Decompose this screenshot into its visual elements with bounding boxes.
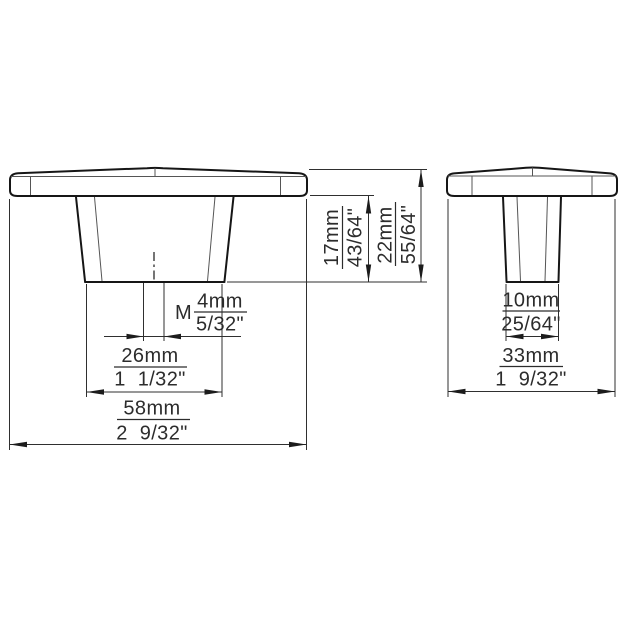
arrowhead-down bbox=[366, 265, 371, 283]
side-neck-right-outer-line bbox=[559, 197, 562, 281]
front-neck-left-outer-line bbox=[76, 197, 85, 281]
front-view bbox=[10, 168, 307, 282]
front-neck-right-outer-line bbox=[225, 197, 234, 281]
dim-overall-width: 58mm 2 9/32" bbox=[10, 199, 307, 450]
arrowhead-right bbox=[289, 442, 307, 447]
front-dimensions: 58mm 2 9/32" 26mm 1 1/32" M 4mm 5/32" bbox=[10, 170, 428, 451]
drawing-canvas: 58mm 2 9/32" 26mm 1 1/32" M 4mm 5/32" bbox=[0, 0, 620, 620]
dim-thread: M 4mm 5/32" bbox=[104, 283, 247, 341]
arrowhead-left bbox=[127, 334, 144, 339]
front-neck-right-inner-line bbox=[208, 197, 216, 281]
label-overall-width-inch: 2 9/32" bbox=[116, 423, 187, 445]
label-overall-depth-inch: 1 9/32" bbox=[495, 369, 566, 391]
arrowhead-up bbox=[366, 196, 371, 214]
technical-drawing: 58mm 2 9/32" 26mm 1 1/32" M 4mm 5/32" bbox=[0, 0, 620, 620]
side-neck-left-inner-line bbox=[517, 197, 521, 281]
side-view bbox=[447, 168, 617, 283]
arrowhead-right bbox=[164, 334, 181, 339]
label-neck-width-mm: 26mm bbox=[121, 345, 178, 367]
arrowhead-left bbox=[87, 389, 105, 394]
arrowhead-left bbox=[448, 389, 466, 394]
label-neck-height-inch: 43/64" bbox=[345, 208, 367, 268]
arrowhead-right bbox=[598, 389, 616, 394]
label-neck-width-inch: 1 1/32" bbox=[114, 369, 185, 391]
front-neck-left-inner-line bbox=[95, 197, 103, 281]
label-neck-height-mm: 17mm bbox=[321, 209, 343, 266]
label-side-neck-width-inch: 25/64" bbox=[501, 314, 561, 336]
label-side-neck-width-mm: 10mm bbox=[502, 290, 559, 312]
label-overall-height-mm: 22mm bbox=[375, 206, 397, 263]
label-overall-width-mm: 58mm bbox=[123, 398, 180, 420]
dim-side-neck-width: 10mm 25/64" bbox=[501, 284, 561, 341]
arrowhead-right bbox=[205, 389, 223, 394]
arrowhead-left bbox=[10, 442, 28, 447]
side-neck-right-inner-line bbox=[545, 197, 548, 281]
dim-neck-height: 17mm 43/64" bbox=[310, 196, 374, 283]
side-dimensions: 10mm 25/64" 33mm 1 9/32" bbox=[448, 199, 615, 397]
label-thread-prefix: M bbox=[175, 302, 192, 324]
label-overall-height-inch: 55/64" bbox=[398, 205, 420, 265]
side-neck-left-outer-line bbox=[503, 197, 507, 281]
label-thread-inch: 5/32" bbox=[196, 314, 244, 336]
arrowhead-down bbox=[418, 265, 423, 283]
label-thread-mm: 4mm bbox=[197, 291, 243, 313]
arrowhead-up bbox=[418, 170, 423, 188]
front-cap-outline bbox=[10, 168, 307, 196]
label-overall-depth-mm: 33mm bbox=[502, 345, 559, 367]
